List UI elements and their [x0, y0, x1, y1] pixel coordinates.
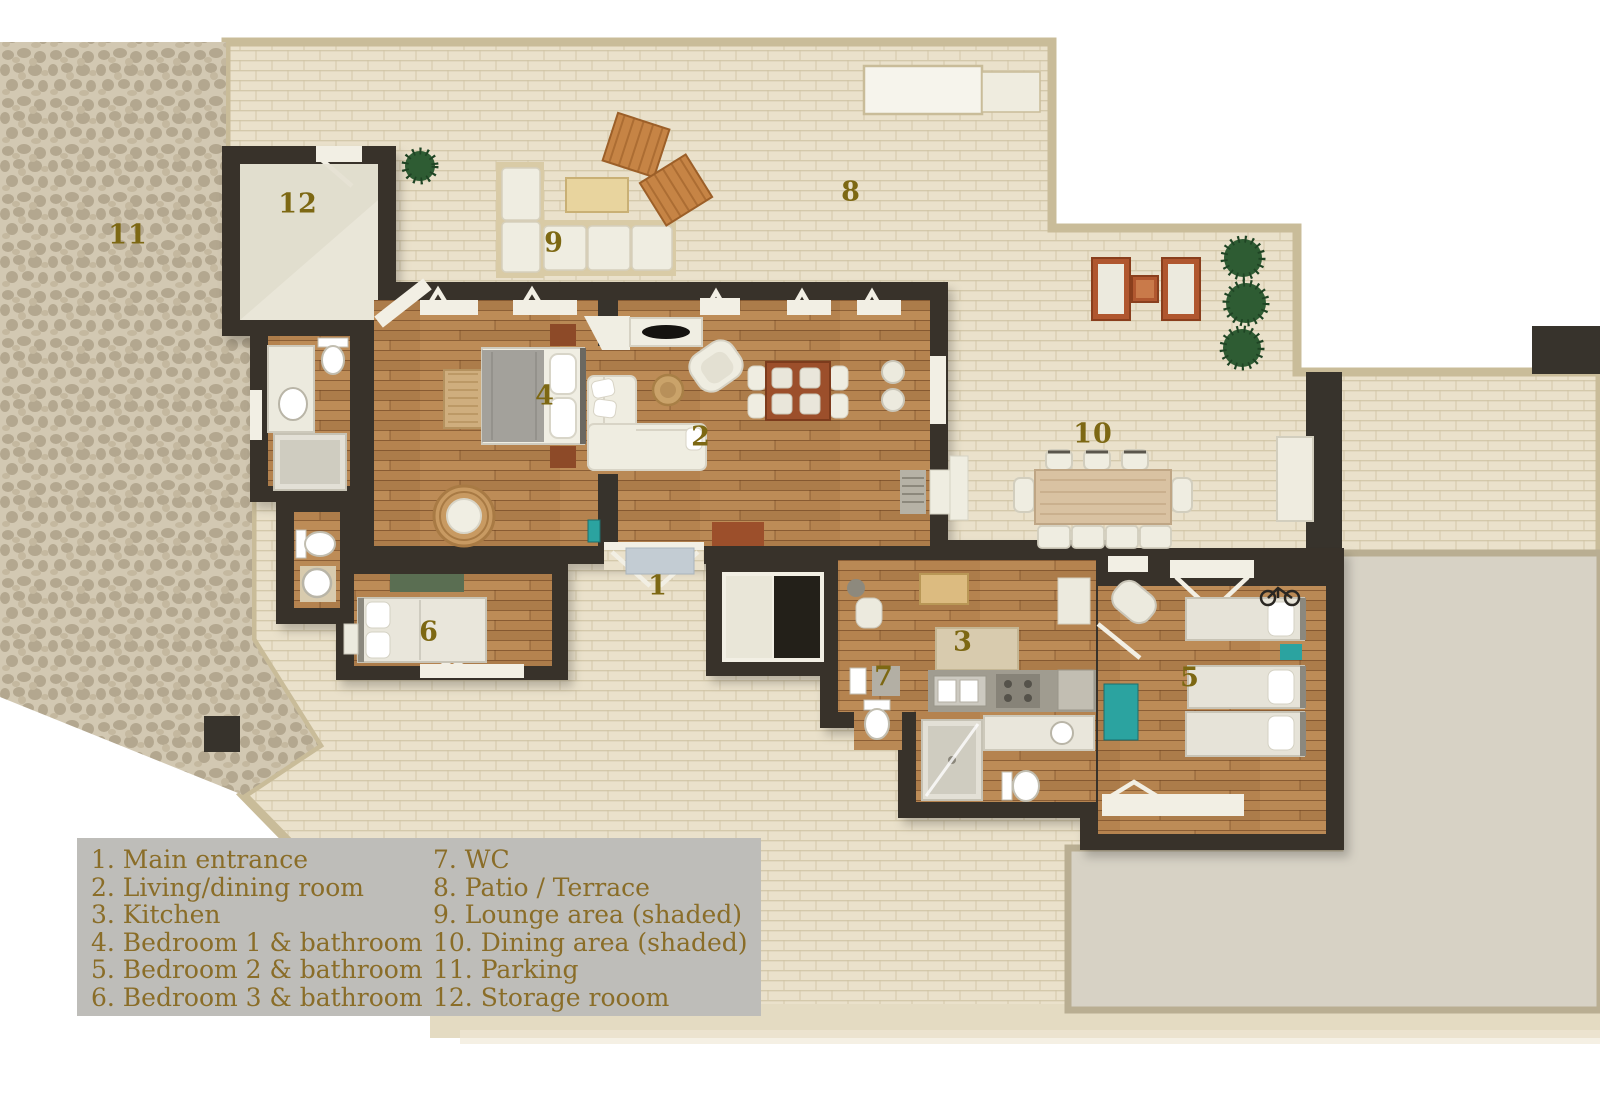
partition-wall [598, 474, 618, 546]
room-label-5: 5 [1180, 663, 1200, 694]
room-label-11: 11 [108, 220, 148, 251]
legend: 1. Main entrance2. Living/dining room3. … [77, 838, 761, 1016]
legend-item: 12. Storage rooom [433, 984, 748, 1012]
dining-bench [1038, 526, 1171, 548]
legend-item: 7. WC [433, 846, 748, 874]
room-label-8: 8 [841, 177, 861, 208]
legend-item: 1. Main entrance [91, 846, 427, 874]
sideboard [1277, 437, 1313, 521]
room-label-4: 4 [535, 381, 555, 412]
radiator [900, 470, 926, 514]
toilet [1013, 771, 1039, 801]
legend-item: 9. Lounge area (shaded) [433, 901, 748, 929]
round-chair [882, 361, 904, 383]
dining-table [1035, 470, 1171, 524]
side-table [344, 624, 358, 654]
entrance-closet [722, 572, 824, 662]
room-label-9: 9 [544, 228, 564, 259]
legend-item: 3. Kitchen [91, 901, 427, 929]
legend-item: 11. Parking [433, 956, 748, 984]
vanity [984, 716, 1094, 750]
wc-sink [850, 668, 866, 694]
kitchen-table [920, 574, 968, 604]
floor-plan-canvas: 123456789101112 1. Main entrance2. Livin… [0, 0, 1600, 1100]
teal-blanket [1280, 644, 1302, 660]
toilet [322, 346, 344, 374]
paving-fringe-fade [460, 1030, 1600, 1044]
room-label-1: 1 [648, 571, 668, 602]
room-label-6: 6 [419, 617, 439, 648]
papasan-chair [434, 486, 494, 546]
toilet [865, 709, 889, 739]
rug [444, 370, 482, 428]
single-bed [1188, 666, 1306, 708]
patio-planter-box [864, 66, 982, 114]
sink [1051, 722, 1073, 744]
legend-item: 6. Bedroom 3 & bathroom [91, 984, 427, 1012]
double-bed [482, 348, 586, 444]
tv-cabinet [712, 522, 764, 546]
boundary-wall-fragment [1532, 326, 1600, 374]
room-label-2: 2 [691, 422, 711, 453]
nightstand [550, 446, 576, 468]
wc2-fixtures [296, 530, 336, 602]
kitchen-rug [936, 628, 1018, 670]
magazine-rack [588, 520, 600, 542]
legend-column-left: 1. Main entrance2. Living/dining room3. … [91, 846, 427, 1016]
room-label-7: 7 [874, 662, 894, 693]
teal-rug [1104, 684, 1138, 740]
single-bed [1186, 712, 1306, 756]
sink [279, 388, 307, 420]
legend-item: 2. Living/dining room [91, 874, 427, 902]
nightstand [550, 324, 576, 346]
kitchen-chair [856, 598, 882, 628]
round-sink [303, 569, 331, 597]
legend-item: 8. Patio / Terrace [433, 874, 748, 902]
round-chair [882, 389, 904, 411]
kitchen-counter [928, 670, 1096, 712]
legend-item: 10. Dining area (shaded) [433, 929, 748, 957]
legend-item: 4. Bedroom 1 & bathroom [91, 929, 427, 957]
room-label-10: 10 [1073, 419, 1113, 450]
fireplace [584, 316, 702, 350]
room-label-3: 3 [953, 627, 973, 658]
gate-pillar [204, 716, 240, 752]
legend-item: 5. Bedroom 2 & bathroom [91, 956, 427, 984]
room-label-12: 12 [278, 189, 318, 220]
kitchen-cabinet [1058, 578, 1090, 624]
legend-column-right: 7. WC8. Patio / Terrace9. Lounge area (s… [433, 846, 748, 1016]
toilet [305, 532, 335, 556]
console [950, 456, 968, 520]
green-rug [390, 574, 464, 592]
patio-planter-box-2 [982, 72, 1040, 112]
pot [847, 579, 865, 597]
